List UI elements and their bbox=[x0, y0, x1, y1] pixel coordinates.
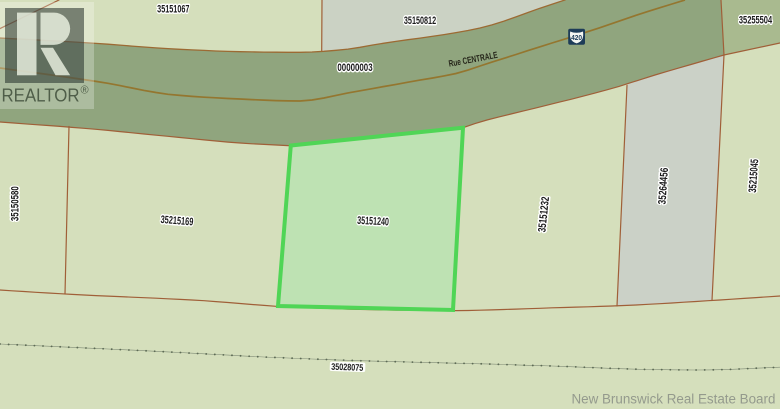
svg-text:35151067: 35151067 bbox=[157, 3, 189, 15]
svg-text:35264456: 35264456 bbox=[656, 167, 671, 205]
svg-text:00000003: 00000003 bbox=[337, 62, 372, 75]
svg-text:®: ® bbox=[81, 85, 89, 97]
svg-text:35215045: 35215045 bbox=[747, 159, 762, 194]
svg-text:420: 420 bbox=[571, 35, 582, 42]
svg-text:New Brunswick Real Estate Boar: New Brunswick Real Estate Board bbox=[571, 392, 775, 407]
svg-text:35150580: 35150580 bbox=[9, 186, 22, 221]
svg-text:35150812: 35150812 bbox=[404, 15, 436, 27]
svg-text:35151240: 35151240 bbox=[357, 214, 389, 228]
svg-text:35028075: 35028075 bbox=[331, 361, 364, 373]
svg-text:35255504: 35255504 bbox=[739, 13, 773, 26]
svg-text:REALTOR: REALTOR bbox=[2, 86, 80, 106]
